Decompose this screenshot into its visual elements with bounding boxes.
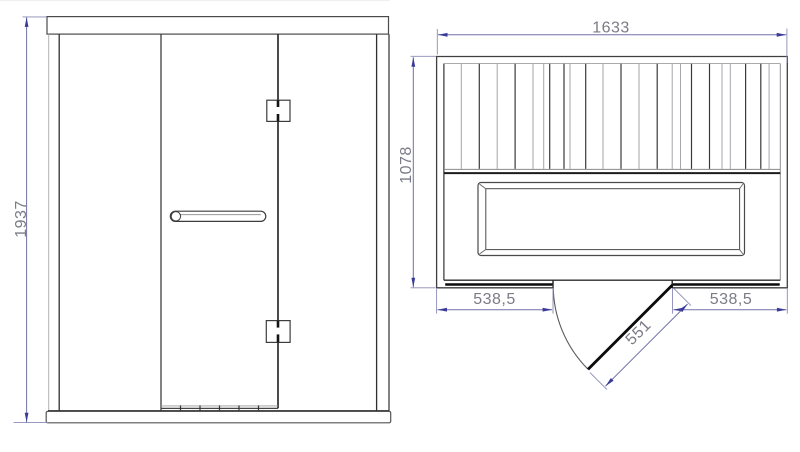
svg-text:551: 551: [623, 317, 655, 349]
svg-text:1078: 1078: [398, 146, 415, 184]
svg-text:1937: 1937: [13, 200, 30, 238]
svg-text:1633: 1633: [592, 19, 630, 36]
svg-text:538,5: 538,5: [710, 291, 753, 308]
svg-text:538,5: 538,5: [473, 291, 516, 308]
